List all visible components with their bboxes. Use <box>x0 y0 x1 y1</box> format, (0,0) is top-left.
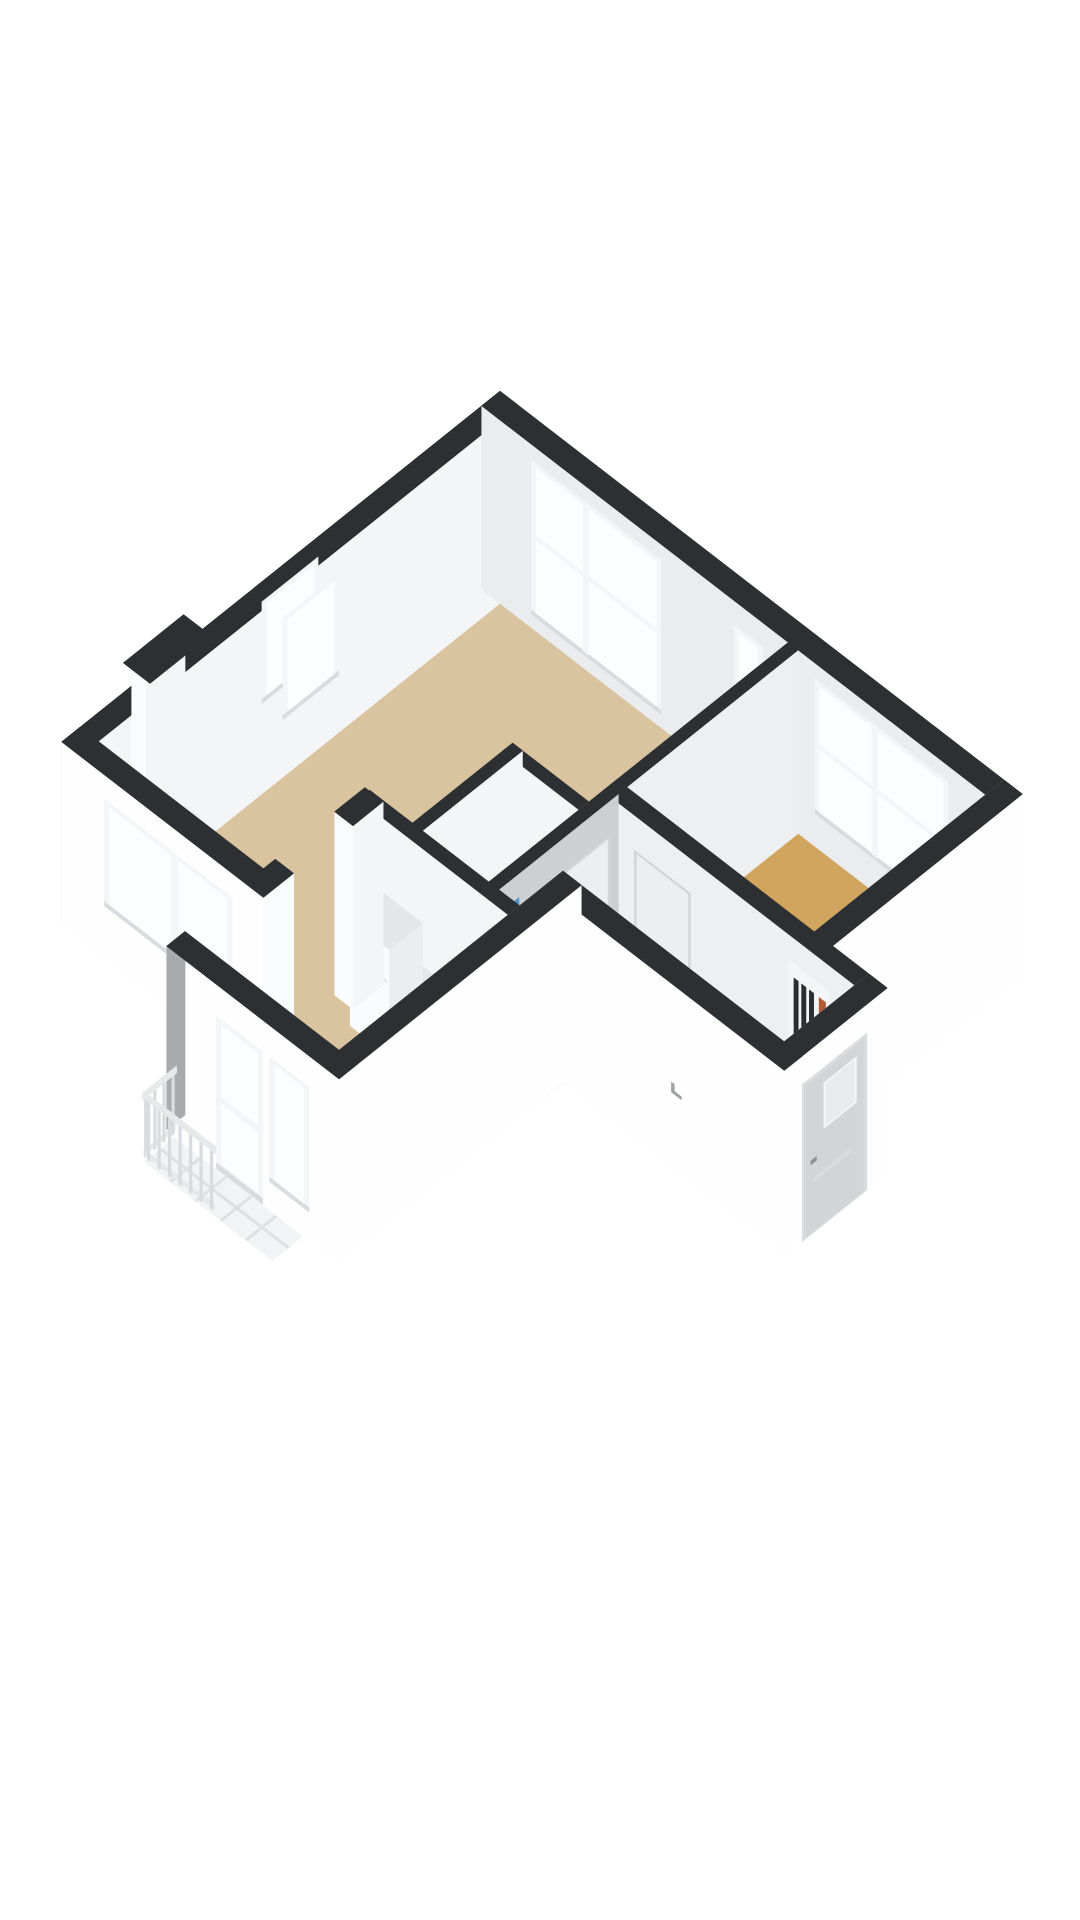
page <box>0 0 1080 1920</box>
kitchen-west-wall-upper <box>335 788 383 1010</box>
floorplan-3d-render <box>0 0 1080 1920</box>
